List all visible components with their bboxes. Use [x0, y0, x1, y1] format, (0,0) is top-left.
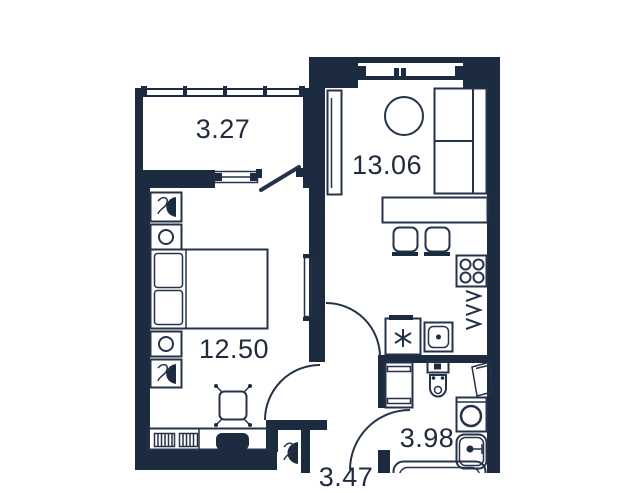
bedroom-furniture — [149, 193, 321, 456]
hallway-area-label: 3.47 — [296, 462, 396, 493]
kitchen-furniture — [326, 89, 488, 358]
desk-chair-base — [211, 450, 254, 455]
dining-table — [383, 198, 488, 223]
lamp-icon — [159, 337, 173, 351]
chair-foot — [248, 384, 252, 388]
desk-chair — [216, 433, 249, 450]
books-hatch — [183, 434, 194, 446]
drain-dot — [436, 335, 441, 340]
snowflake-icon — [395, 329, 411, 347]
burner-rings-icon — [461, 273, 471, 283]
cabinet-band — [388, 399, 411, 404]
chair-foot — [214, 423, 218, 427]
burner-rings-icon — [474, 260, 484, 270]
chair-back — [424, 252, 450, 256]
toilet-dot — [441, 376, 445, 380]
burner-rings-icon — [474, 273, 484, 283]
nightstand — [151, 193, 182, 222]
bedroom-area-label: 12.50 — [174, 334, 294, 365]
toilet-drain — [435, 387, 442, 394]
window-frame-block — [250, 173, 257, 181]
table-lamp-icon — [158, 365, 167, 381]
balcony-window-door — [214, 167, 303, 190]
round-table — [385, 97, 423, 135]
radiator-cap — [303, 317, 313, 321]
chair-foot — [248, 423, 252, 427]
books — [180, 434, 198, 447]
burner-rings-icon — [461, 260, 471, 270]
bathroom-area-label: 3.98 — [377, 423, 477, 454]
pillow — [155, 291, 183, 325]
cabinet-band — [388, 367, 411, 372]
double-bed — [151, 250, 268, 329]
chair — [220, 392, 247, 420]
window-frame-block — [215, 173, 222, 181]
chair-foot — [214, 384, 218, 388]
toilet-button — [434, 364, 441, 370]
floor-plan: 3.27 13.06 12.50 3.98 3.47 — [0, 0, 640, 473]
chair — [426, 228, 450, 252]
pillow — [155, 254, 183, 288]
toilet-dot — [432, 376, 436, 380]
hallway-furniture — [284, 442, 298, 464]
bedroom-door-arc — [265, 365, 320, 420]
lamp-icon — [159, 230, 173, 244]
plan-linework — [0, 0, 640, 473]
corner-water-heater — [472, 362, 492, 396]
kitchen-area-label: 13.06 — [337, 150, 437, 181]
nightstand — [151, 225, 182, 250]
chair-back — [392, 252, 418, 256]
fridge-top — [389, 315, 413, 320]
balcony-area-label: 3.27 — [173, 114, 273, 145]
table-lamp-icon — [158, 198, 167, 214]
dish-rack-zigzag — [466, 291, 480, 329]
radiator — [305, 258, 312, 317]
bathroom-fixtures — [350, 362, 492, 474]
balcony-door-leaf — [261, 167, 299, 190]
chair — [394, 228, 418, 252]
bath-cabinet — [386, 363, 413, 408]
kitchen-door-arc — [326, 303, 380, 357]
radiator-cap — [303, 254, 313, 258]
books-hatch — [158, 434, 172, 446]
door-jamb — [256, 169, 262, 178]
door-jamb — [296, 168, 303, 177]
